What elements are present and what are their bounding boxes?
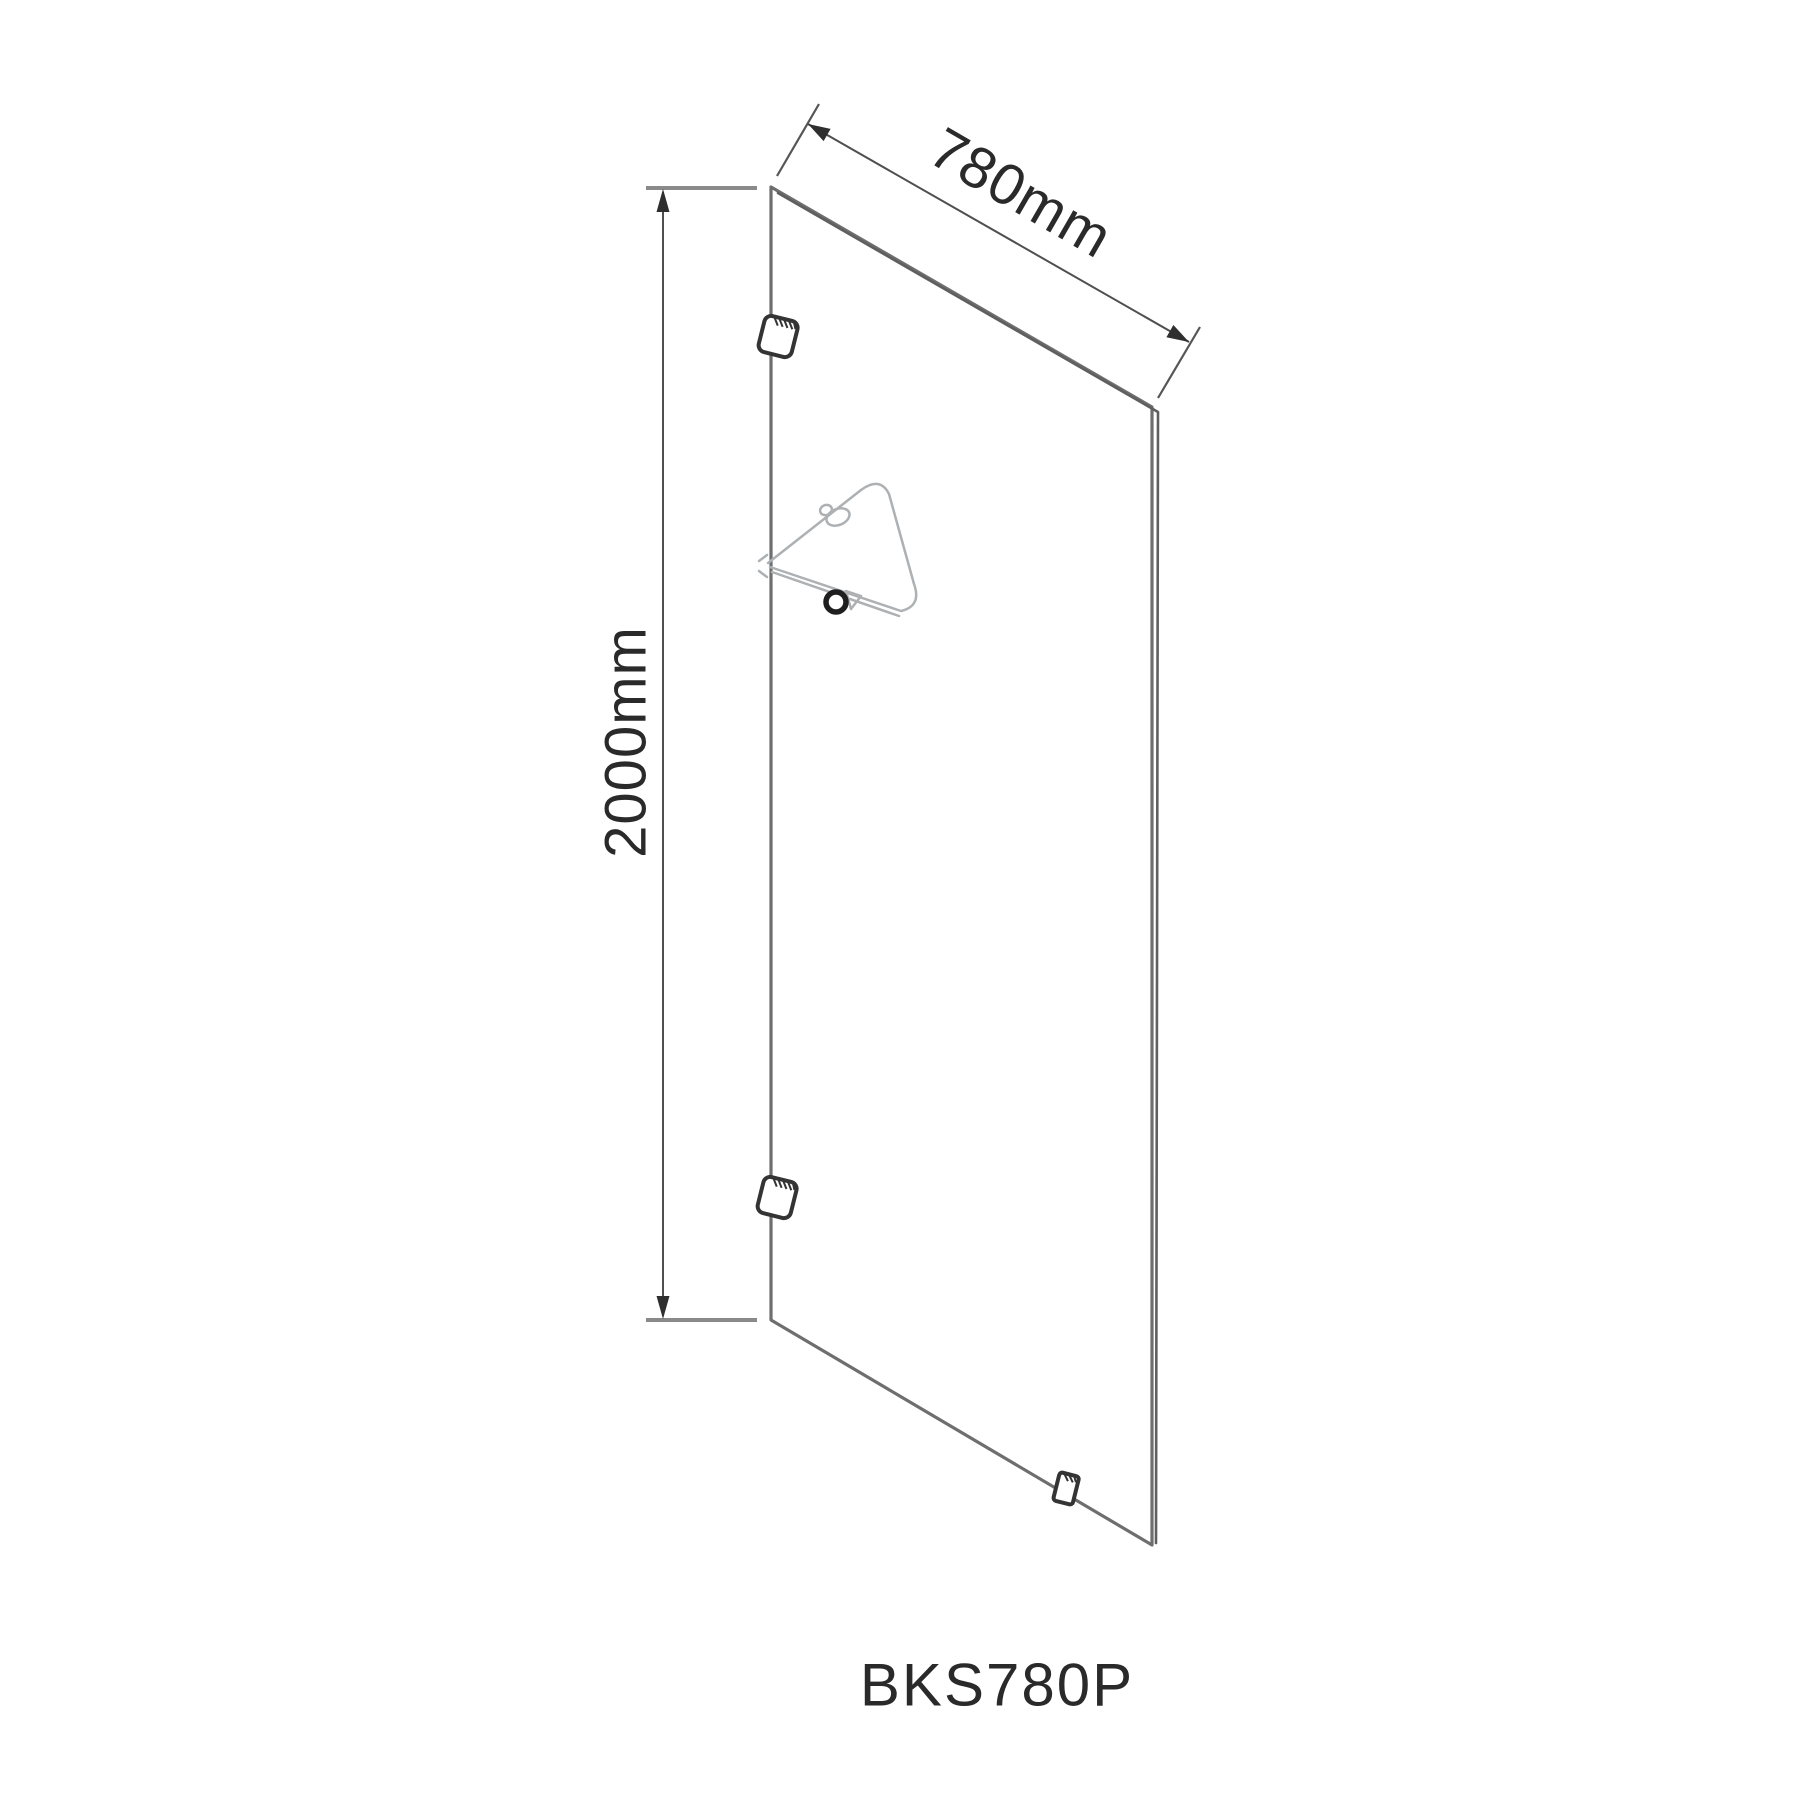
product-code-label: BKS780P (860, 1652, 1134, 1719)
wall-bracket-top (757, 314, 799, 358)
shelf-knob-icon (826, 592, 846, 612)
wall-bracket-bottom (756, 1175, 798, 1219)
arrow-up-icon (657, 189, 670, 212)
glass-panel (771, 187, 1158, 1545)
arrow-down-icon (657, 1296, 670, 1319)
arrow-upleft-icon (808, 124, 831, 141)
shelf-edge-grip (759, 555, 767, 577)
technical-drawing-page: 2000mm 780mm (0, 0, 1800, 1800)
width-extension-tick-left (777, 104, 819, 176)
height-dimension: 2000mm (594, 188, 758, 1320)
height-dimension-label: 2000mm (594, 626, 659, 858)
arrow-downright-icon (1166, 325, 1189, 342)
glass-panel-face (771, 187, 1152, 1545)
floor-bracket (1053, 1472, 1079, 1505)
width-dimension-label: 780mm (919, 115, 1123, 270)
